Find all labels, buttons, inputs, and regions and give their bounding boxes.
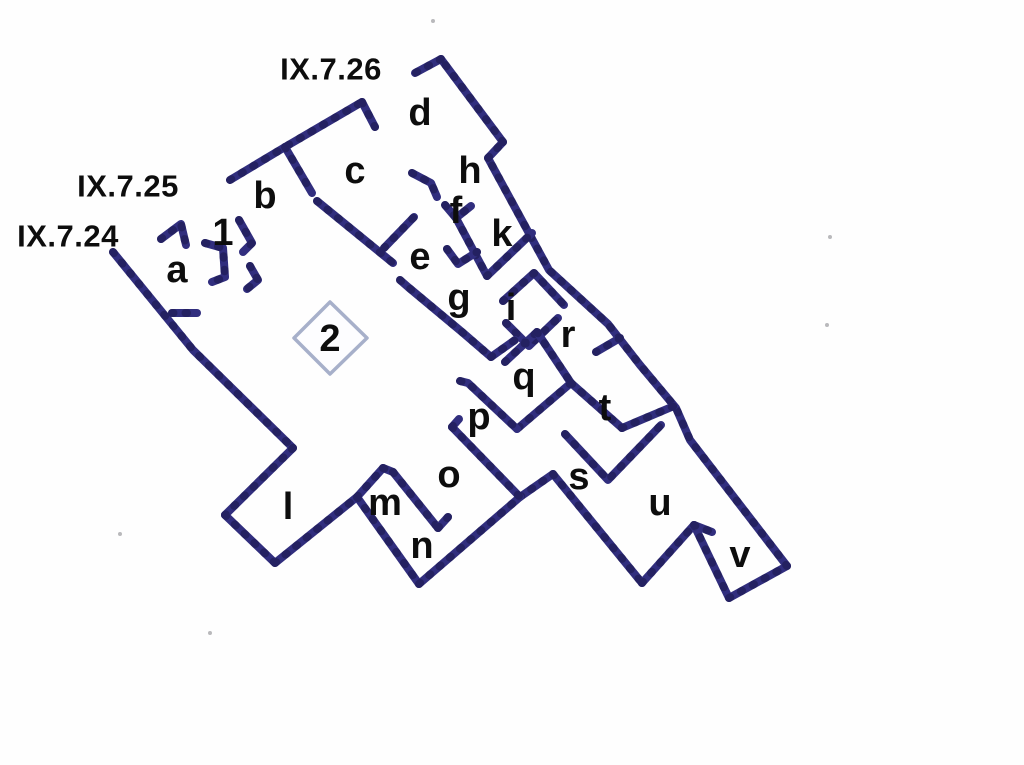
entrance-label-ix-7-25: IX.7.25: [77, 169, 179, 204]
scan-speck-0: [431, 19, 435, 23]
room-label-p: p: [467, 396, 490, 438]
room-label-1: 1: [212, 212, 233, 254]
wall-segment-texture-38: [596, 338, 620, 352]
scan-specks: [118, 19, 832, 635]
room-label-n: n: [410, 525, 433, 567]
entrance-label-ix-7-24: IX.7.24: [17, 219, 119, 254]
scan-speck-4: [208, 631, 212, 635]
room-label-s: s: [568, 456, 589, 498]
entrance-label-ix-7-26: IX.7.26: [280, 52, 382, 87]
room-label-v: v: [729, 534, 750, 576]
scanned-plan-page: IX.7.26IX.7.25IX.7.24 abcdefghiklmnopqrs…: [0, 0, 1024, 765]
wall-segment-texture-17: [362, 102, 375, 127]
room-label-g: g: [447, 277, 470, 319]
wall-segment-texture-9: [642, 525, 694, 583]
room-label-o: o: [437, 454, 460, 496]
room-label-r: r: [561, 314, 576, 356]
scan-speck-3: [118, 532, 122, 536]
room-label-m: m: [368, 482, 402, 524]
wall-segment-texture-15: [415, 59, 441, 73]
room-label-2: 2: [319, 318, 340, 360]
floor-plan-ix-7-24-26: IX.7.26IX.7.25IX.7.24 abcdefghiklmnopqrs…: [0, 0, 1024, 765]
room-label-b: b: [253, 175, 276, 217]
wall-segment-7: [520, 474, 553, 497]
room-label-e: e: [409, 236, 430, 278]
room-label-k: k: [491, 213, 513, 255]
room-label-u: u: [648, 482, 671, 524]
room-label-q: q: [512, 356, 535, 398]
room-label-l: l: [283, 486, 294, 528]
room-label-f: f: [450, 190, 463, 232]
room-label-h: h: [458, 150, 481, 192]
room-label-c: c: [344, 150, 365, 192]
room-label-d: d: [408, 92, 431, 134]
room-label-i: i: [506, 287, 517, 329]
walls: [113, 59, 787, 598]
room-label-a: a: [166, 249, 188, 291]
room-label-t: t: [599, 387, 612, 429]
wall-segment-texture-24: [412, 173, 437, 197]
entrance-labels: IX.7.26IX.7.25IX.7.24: [17, 52, 382, 254]
scan-speck-2: [825, 323, 829, 327]
scan-speck-1: [828, 235, 832, 239]
wall-segment-texture-0: [113, 252, 293, 448]
